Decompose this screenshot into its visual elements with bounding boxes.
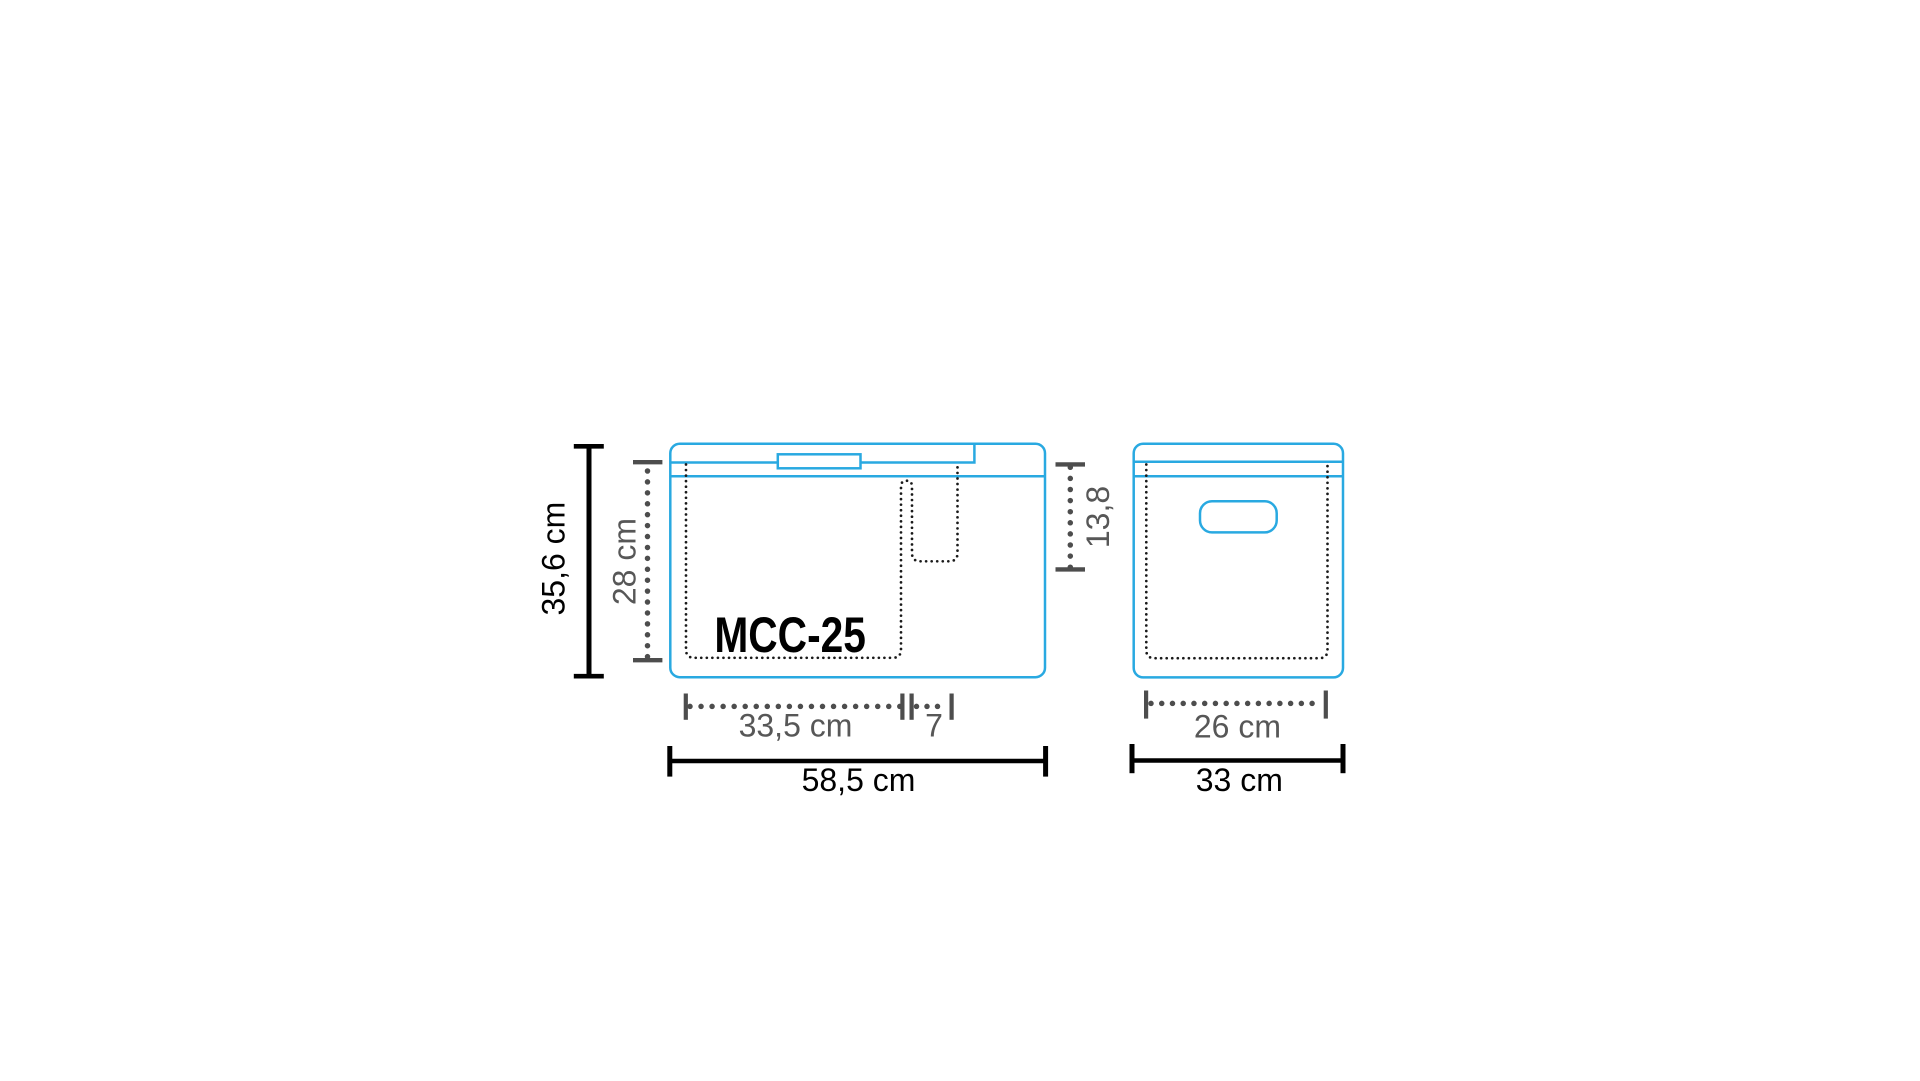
svg-text:26 cm: 26 cm [1194, 709, 1281, 745]
svg-text:28 cm: 28 cm [607, 518, 643, 605]
svg-text:33,5 cm: 33,5 cm [739, 708, 853, 744]
svg-text:MCC-25: MCC-25 [714, 607, 866, 663]
svg-text:33 cm: 33 cm [1196, 762, 1283, 798]
svg-text:7: 7 [925, 708, 943, 744]
svg-text:35,6 cm: 35,6 cm [536, 502, 572, 616]
svg-text:13,8: 13,8 [1080, 486, 1116, 548]
svg-text:58,5 cm: 58,5 cm [802, 762, 916, 798]
